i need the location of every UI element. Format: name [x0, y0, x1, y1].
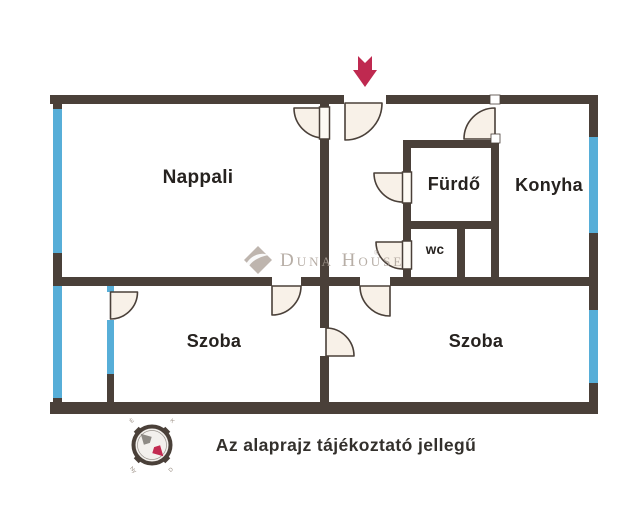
wall-segment — [403, 140, 499, 148]
watermark: Duna House ® — [244, 246, 404, 274]
room-label-wc: wc — [425, 242, 445, 257]
compass-tick-label: Ny — [128, 466, 137, 475]
wall-segment — [386, 95, 490, 104]
watermark-registered-mark: ® — [374, 249, 380, 257]
wall-segment — [320, 139, 329, 328]
door-arc-konyha — [464, 108, 495, 139]
window-segment — [53, 109, 62, 253]
room-label-furdo: Fürdő — [428, 174, 481, 194]
compass-tick-label: É — [128, 417, 136, 425]
wall-segment — [107, 374, 114, 402]
window-segment — [107, 286, 114, 292]
down-arrow-icon — [353, 56, 377, 87]
wall-segment — [301, 277, 360, 286]
door-arc-balcony — [111, 292, 138, 319]
floor-plan: Duna House ® Nappali Fürdő Konyha wc Szo… — [0, 0, 640, 518]
floor-plan-canvas: Duna House ® Nappali Fürdő Konyha wc Szo… — [0, 0, 640, 518]
compass-icon: É K D Ny — [128, 417, 175, 475]
wall-segment — [390, 277, 598, 286]
wall-segment — [457, 229, 465, 277]
wall-segment — [320, 356, 329, 402]
room-label-konyha: Konyha — [515, 175, 583, 195]
window-segment — [589, 310, 598, 383]
wall-segment — [50, 402, 598, 414]
door-arc-szoba-left — [272, 286, 301, 315]
compass-tick-label: D — [168, 467, 175, 474]
wall-segment — [403, 229, 411, 241]
compass-hub — [150, 443, 153, 446]
door-leaf — [320, 107, 330, 139]
room-label-szoba-left: Szoba — [187, 331, 242, 351]
wall-segment — [589, 95, 598, 137]
wall-segment — [50, 95, 344, 104]
window-segment — [53, 284, 62, 398]
wall-segment — [589, 383, 598, 414]
watermark-text: Duna House — [280, 250, 404, 271]
wall-segment — [53, 95, 62, 109]
door-leaf — [403, 172, 412, 203]
wall-segment — [403, 221, 499, 229]
duna-house-logo-icon — [244, 246, 272, 274]
compass-tick-label: K — [168, 418, 175, 425]
wall-segment — [589, 233, 598, 310]
door-frame-notch — [491, 134, 500, 143]
window-segment — [589, 137, 598, 233]
door-arc-furdo — [374, 173, 403, 202]
window-segment — [107, 320, 114, 374]
door-arc-szoba-right — [360, 286, 390, 316]
room-label-nappali: Nappali — [163, 167, 234, 188]
wall-segment — [500, 95, 598, 104]
wall-segment — [491, 148, 499, 277]
door-frame-notch — [490, 95, 500, 104]
door-arc-connecting — [326, 328, 354, 356]
wall-segment — [403, 148, 411, 172]
wall-segment — [320, 95, 329, 107]
room-label-szoba-right: Szoba — [449, 331, 504, 351]
wall-segment — [403, 203, 411, 221]
wall-segment — [53, 398, 62, 414]
door-arc-entrance — [345, 103, 382, 140]
caption-text: Az alaprajz tájékoztató jellegű — [216, 435, 476, 455]
wall-segment — [53, 277, 272, 286]
